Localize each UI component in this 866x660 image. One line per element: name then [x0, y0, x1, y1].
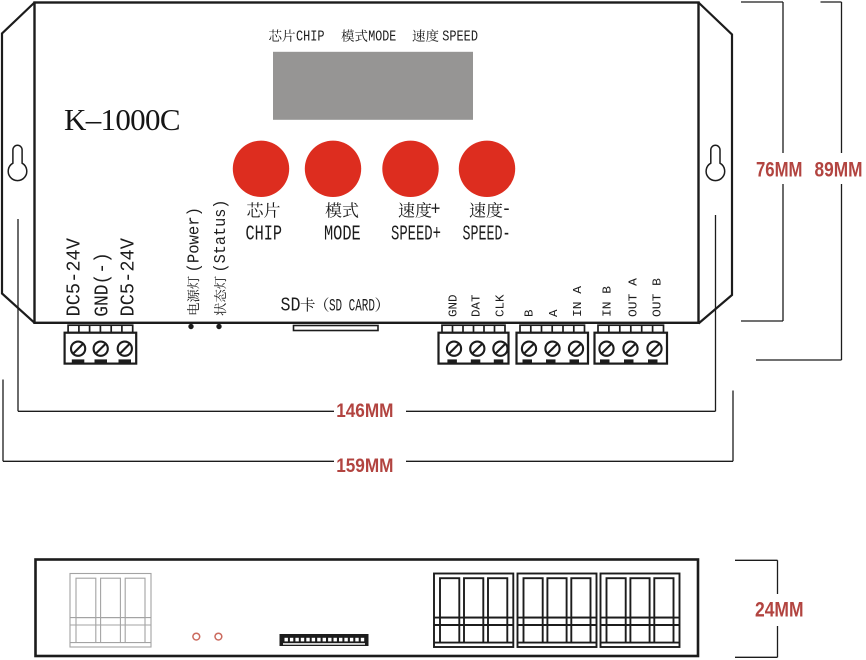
svg-text:GND: GND — [447, 294, 461, 317]
svg-text:+: + — [431, 200, 441, 221]
svg-text:DC5-24V: DC5-24V — [117, 238, 139, 317]
svg-text:-: - — [502, 200, 512, 221]
svg-text:IN B: IN B — [601, 286, 615, 317]
svg-text:GND(-): GND(-) — [91, 252, 114, 316]
svg-text:IN A: IN A — [571, 286, 585, 317]
svg-text:89MM: 89MM — [815, 159, 863, 182]
svg-text:(Power): (Power) — [184, 207, 204, 272]
svg-text:SPEED-: SPEED- — [463, 223, 511, 247]
svg-text:CLK: CLK — [494, 294, 508, 317]
svg-text:SD CARD: SD CARD — [329, 297, 375, 316]
svg-text:24MM: 24MM — [755, 599, 803, 622]
svg-text:76MM: 76MM — [756, 159, 802, 182]
svg-text:DAT: DAT — [469, 294, 483, 317]
svg-text:SD: SD — [281, 296, 301, 317]
svg-text:OUT A: OUT A — [627, 278, 641, 317]
svg-text:MODE: MODE — [324, 221, 361, 246]
svg-text:DC5-24V: DC5-24V — [63, 238, 85, 317]
svg-text:146MM: 146MM — [336, 400, 393, 421]
svg-text:B: B — [523, 309, 537, 317]
svg-text:MODE: MODE — [368, 29, 396, 46]
svg-text:CHIP: CHIP — [296, 29, 324, 46]
svg-text:CHIP: CHIP — [246, 221, 282, 246]
svg-text:SPEED+: SPEED+ — [391, 223, 441, 247]
svg-text:(Status): (Status) — [211, 200, 230, 273]
svg-text:OUT B: OUT B — [651, 278, 665, 317]
svg-text:SPEED: SPEED — [442, 29, 478, 46]
svg-text:K–1000C: K–1000C — [64, 102, 182, 137]
svg-text:A: A — [547, 309, 561, 317]
svg-text:159MM: 159MM — [336, 455, 393, 476]
